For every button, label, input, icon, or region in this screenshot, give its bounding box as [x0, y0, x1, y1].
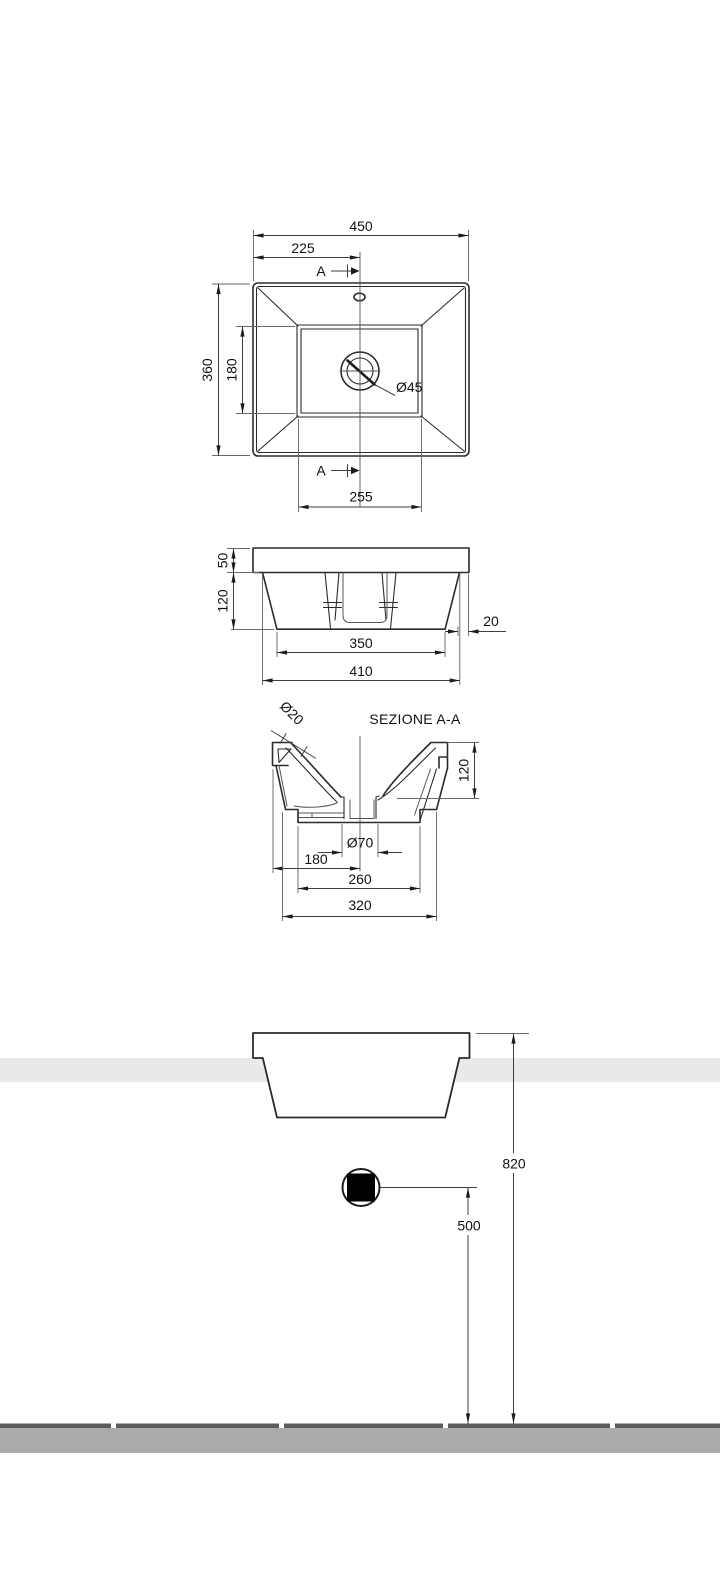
right-support-leg-inner [415, 769, 431, 815]
bowl-wall-left-outer [291, 743, 341, 797]
section-letter-a: A [316, 463, 326, 479]
bowl-wall-right-inner [378, 748, 436, 800]
dim-label-260: 260 [348, 871, 372, 887]
front-view-elevation: 50 120 20 350 410 [215, 548, 507, 685]
dim-label-450: 450 [349, 218, 373, 234]
washbasin-technical-drawing: Ø45 450 225 360 180 A A [0, 0, 720, 1588]
basin-outer-rim-inner-edge [257, 287, 466, 453]
basin-outer-rim [253, 283, 469, 456]
bowl-shell-underside [294, 803, 337, 807]
front-body-outline [263, 573, 460, 629]
dim-label-320: 320 [348, 897, 372, 913]
floor-segment [284, 1424, 443, 1429]
corner-slope-line-bl [258, 416, 298, 451]
drain-boss-leg [335, 573, 339, 620]
section-arrowhead-icon [351, 467, 360, 474]
basin-silhouette [253, 1033, 470, 1118]
section-right-wall [437, 768, 448, 810]
dim-label-350: 350 [349, 635, 373, 651]
section-view-a-a: SEZIONE A-A Ø20 120 [271, 698, 479, 921]
section-arrowhead-icon [351, 267, 360, 274]
section-cut-marker-a-bottom: A [316, 463, 359, 479]
section-title: SEZIONE A-A [369, 711, 461, 727]
dim-label-overflow-20: Ø20 [277, 698, 307, 728]
dim-label-180-plan: 180 [224, 358, 240, 382]
drain-boss-rib [380, 603, 398, 608]
corner-slope-line-br [421, 416, 464, 451]
dim-label-500: 500 [457, 1218, 481, 1234]
front-rim [253, 548, 469, 573]
drain-hole-walls [350, 800, 374, 819]
section-letter-a: A [316, 263, 326, 279]
overflow-tick [301, 746, 307, 756]
dim-label-50: 50 [215, 553, 231, 569]
dim-label-410: 410 [349, 663, 373, 679]
technical-drawing-page: Ø45 450 225 360 180 A A [0, 0, 720, 1588]
dim-label-225: 225 [291, 240, 315, 256]
dim-label-180-section: 180 [304, 851, 328, 867]
dim-label-120-front: 120 [215, 589, 231, 613]
installation-view: 820 500 [0, 1033, 720, 1453]
corner-slope-line-tl [258, 288, 298, 326]
dim-label-drain-70: Ø70 [347, 835, 374, 851]
drain-boss-leg [382, 573, 386, 620]
section-base-outline [276, 766, 437, 823]
dim-label-360: 360 [199, 358, 215, 382]
corner-slope-line-tr [421, 288, 464, 326]
right-support-leg [421, 769, 437, 819]
floor-segment [615, 1424, 720, 1429]
top-view-plan: Ø45 450 225 360 180 A A [199, 218, 469, 512]
floor-band [0, 1428, 720, 1453]
dim-label-drain-45: Ø45 [396, 379, 423, 395]
dim-label-120-section: 120 [456, 759, 472, 783]
drain-recess-outline [343, 573, 387, 623]
drain-boss-leg [391, 573, 397, 629]
floor-segment [116, 1424, 279, 1429]
dim-label-255: 255 [349, 489, 373, 505]
overflow-leader-line [271, 731, 316, 759]
floor-line [0, 1424, 720, 1454]
floor-segment [448, 1424, 610, 1429]
section-cut-marker-a-top: A [316, 263, 359, 279]
dim-label-20: 20 [483, 613, 499, 629]
drain-boss-rib [324, 603, 342, 608]
drain-leader-line [375, 385, 396, 396]
waste-outlet-square [347, 1174, 375, 1202]
drain-boss-leg [325, 573, 331, 629]
base-ledge-lines [299, 813, 344, 818]
dim-label-820: 820 [502, 1156, 526, 1172]
overflow-hole-icon [354, 293, 365, 301]
floor-segment [0, 1424, 111, 1429]
section-right-rim [431, 743, 448, 769]
